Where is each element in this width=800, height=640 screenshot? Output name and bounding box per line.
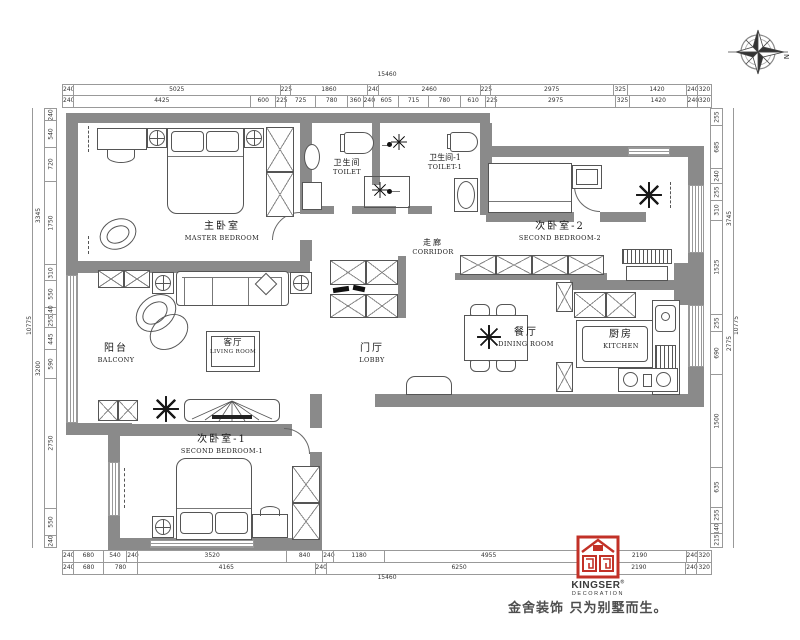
shaft-column [556,282,573,312]
window-seat [626,266,668,281]
wall [66,113,78,275]
balcony-cabinet [98,270,124,288]
window [150,540,254,548]
lamp-icon [155,275,171,291]
shoes-icon [333,286,350,293]
shower-head-icon [387,142,392,147]
hallway-cabinet [496,255,532,275]
wall [300,240,312,261]
curtain-icon [88,126,89,152]
logo-brand: KINGSER [571,580,620,591]
wall [375,394,690,407]
entry-door-mat [406,376,452,395]
brand-slogan: 金舍装饰 只为别墅而生。 [508,597,708,616]
balcony-cabinet [118,400,138,421]
shoes-icon [353,285,366,292]
wall [486,146,704,157]
burner-icon [623,372,638,387]
dining-chair [496,360,516,372]
stove-center [643,374,652,387]
room-label-lobby: 门厅LOBBY [342,343,402,364]
room-label-bedroom1: 次卧室-1SECOND BEDROOM-1 [162,434,282,455]
curtain-icon [124,468,125,508]
kingser-logo: KINGSER® DECORATION [568,532,628,598]
compass-north-label: N [782,54,790,59]
room-label-kitchen: 厨房KITCHEN [586,329,656,350]
tv-icon [190,399,274,421]
wall [408,206,432,214]
dim-left-group2: 3200 [35,361,42,376]
door-arc-bedroom1 [284,428,310,454]
sofa-arm [281,277,282,305]
sofa-bed-line [489,201,571,202]
burner-icon [656,372,671,387]
sofa-divider [248,277,249,305]
compass-icon: N [726,20,792,86]
pillow [171,131,204,152]
toilet-fixture [344,132,374,154]
dim-top-row2: 2404425600225725780360240605715780610225… [62,95,712,108]
toilet-tank [340,134,345,152]
dim-left-col: 2405407201750310550140255445590275055024… [44,108,57,548]
room-label-corridor: 走廊CORRIDOR [403,238,463,256]
plant-icon [636,182,662,208]
room-label-dining: 餐厅DINING ROOM [491,327,561,348]
lamp-icon [246,130,262,146]
wardrobe-cabinet [292,466,320,503]
balcony-cabinet [98,400,118,421]
dresser-stool [107,150,135,163]
pillow [215,512,248,534]
wall [310,394,322,428]
bench-cushion [260,506,280,516]
dresser [97,128,147,150]
toilet-fixture [450,132,478,152]
dim-left-group1: 3345 [35,208,42,223]
room-label-toilet: 卫生间TOILET [317,158,377,176]
blanket-line [177,508,251,509]
room-label-toilet1: 卫生间-1TOILET-1 [415,153,475,171]
shower-spray-icon [372,182,388,198]
door-arc-bedroom2 [574,186,600,212]
shower-arm [392,191,400,192]
shower-spray-icon [391,134,407,150]
radiator [622,249,672,264]
dim-top-total: 15460 [62,71,712,78]
shower-head-icon [387,189,392,194]
dim-left-total-line [32,108,33,548]
wall [398,256,406,318]
wardrobe-cabinet [292,503,320,540]
hallway-cabinet [568,255,604,275]
shoe-cabinet [366,260,398,285]
fridge [574,292,606,318]
curtain-icon [670,182,671,208]
appliance-cabinet [606,292,636,318]
kingser-emblem-icon [575,532,621,580]
sofa-arm [184,277,185,305]
dim-right-total: 10775 [733,316,740,335]
dim-right-col: 2556852402553101525255690150063525514021… [710,108,723,548]
pillow [180,512,213,534]
wall [78,113,490,123]
shaft-column [556,362,573,392]
window [108,462,120,516]
pillow [206,131,239,152]
hallway-cabinet [460,255,496,275]
window [628,147,670,156]
washer-cabinet [302,182,322,210]
room-label-bedroom2: 次卧室-2SECOND BEDROOM-2 [505,221,615,242]
room-label-master: 主卧室MASTER BEDROOM [172,221,272,242]
plant-icon [153,396,179,422]
dining-chair [470,360,490,372]
curtain-icon [88,236,89,254]
window [66,275,78,423]
wardrobe-cabinet [266,127,294,172]
lamp-icon [155,519,171,535]
wall [108,424,120,462]
lamp-icon [149,130,165,146]
window [688,185,704,253]
balcony-cabinet [124,270,150,288]
sofa-bed [488,163,572,213]
room-label-living: 客厅LIVING ROOM [206,338,260,356]
logo-registered-mark: ® [620,580,624,586]
sofa-divider [212,277,213,305]
wall [570,280,690,290]
storage-cabinet [330,294,366,318]
bench [252,514,288,538]
storage-cabinet [366,294,398,318]
shoe-cabinet [330,260,366,285]
sink-drain [661,312,670,321]
floor-plan: 15460 2405025225186024024602252975325142… [0,0,800,640]
window [688,305,704,367]
dim-right-total-line [733,108,734,548]
hallway-cabinet [532,255,568,275]
room-label-balcony: 阳台BALCONY [86,343,146,364]
side-table-inner [576,169,598,185]
blanket-line [168,156,243,157]
lamp-icon [293,275,309,291]
sink [457,181,475,209]
wall [688,157,704,185]
wardrobe-cabinet [266,172,294,217]
wall [688,367,704,407]
toilet-tank [447,134,451,149]
